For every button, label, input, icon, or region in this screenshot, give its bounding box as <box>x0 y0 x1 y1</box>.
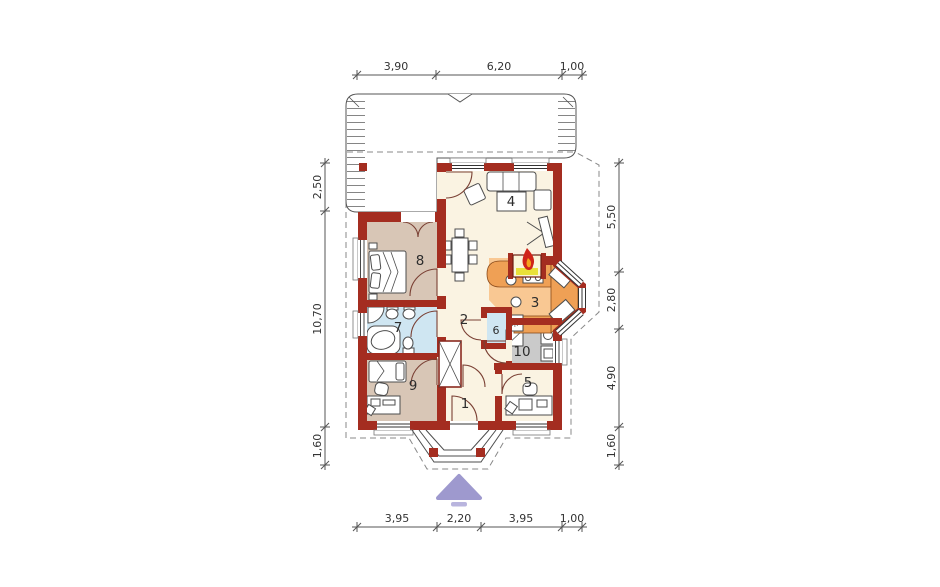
dim-left-1: 2,50 <box>311 175 324 200</box>
kitchen-sink-bowl-2 <box>511 297 521 307</box>
porch-post-right <box>476 448 485 457</box>
entrance-porch <box>412 430 503 462</box>
dimension-left: 2,50 10,70 1,60 <box>311 158 330 470</box>
room-label-2: 2 <box>460 312 469 328</box>
single-bed <box>369 361 406 382</box>
toilet-bathroom <box>403 337 414 354</box>
window-room10 <box>553 341 562 363</box>
window-living-2 <box>514 163 547 171</box>
dim-bottom-3: 3,95 <box>509 512 534 525</box>
room-label-3: 3 <box>531 295 540 311</box>
room-label-10: 10 <box>513 344 530 360</box>
sofa <box>487 172 536 191</box>
hall-closet <box>439 341 461 387</box>
window-bedroom8 <box>358 240 367 278</box>
dim-bottom-4: 1,00 <box>560 512 585 525</box>
window-living-1 <box>452 163 484 171</box>
terrace-post <box>359 163 367 171</box>
bedroom8-terrace-door-gap <box>401 212 435 222</box>
chair-room9 <box>374 382 389 396</box>
dimension-bottom: 3,95 2,20 3,95 1,00 <box>352 512 587 532</box>
room-label-5: 5 <box>524 375 533 391</box>
porch-post-left <box>429 448 438 457</box>
window-room5 <box>516 421 547 430</box>
dimension-right: 5,50 2,80 4,90 1,60 <box>605 158 624 470</box>
terrace-hatch-right <box>558 97 575 155</box>
dim-bottom-1: 3,95 <box>385 512 410 525</box>
floor-plan-drawing: 3,90 6,20 1,00 3,95 2,20 3,95 1,00 2,50 … <box>0 0 940 587</box>
dim-right-2: 2,80 <box>605 288 618 313</box>
dim-left-2: 10,70 <box>311 303 324 335</box>
window-bedroom9 <box>377 421 410 430</box>
dim-left-3: 1,60 <box>311 434 324 459</box>
room-label-1: 1 <box>461 396 470 412</box>
terrace-hatch-left <box>347 97 365 209</box>
dim-bottom-2: 2,20 <box>447 512 472 525</box>
dim-top-2: 6,20 <box>487 60 512 73</box>
dim-top-3: 1,00 <box>560 60 585 73</box>
armchair-right <box>534 190 551 210</box>
room-label-4: 4 <box>507 194 516 210</box>
dim-right-4: 1,60 <box>605 434 618 459</box>
entrance-arrow-icon <box>438 476 480 507</box>
room-label-7: 7 <box>394 320 403 336</box>
dim-top-1: 3,90 <box>384 60 409 73</box>
dim-right-3: 4,90 <box>605 366 618 391</box>
room-label-8: 8 <box>416 253 425 269</box>
dim-right-1: 5,50 <box>605 205 618 230</box>
dimension-top: 3,90 6,20 1,00 <box>352 60 587 80</box>
room-label-9: 9 <box>409 378 418 394</box>
room-label-6: 6 <box>493 324 500 337</box>
floor-plan-page: 3,90 6,20 1,00 3,95 2,20 3,95 1,00 2,50 … <box>0 0 940 587</box>
double-bed <box>369 243 406 300</box>
window-bathroom <box>358 313 367 336</box>
